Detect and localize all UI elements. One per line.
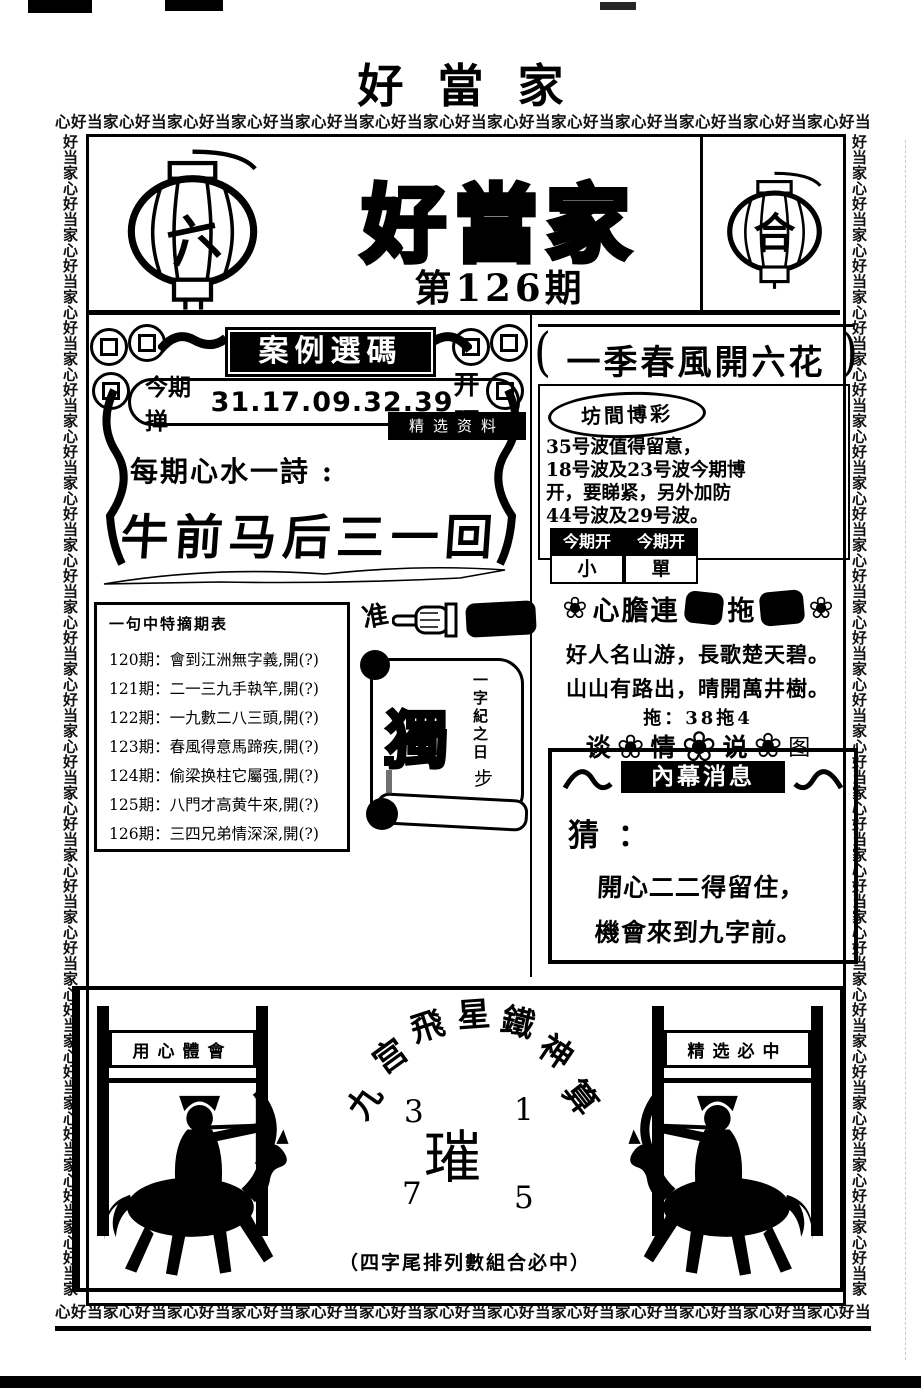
tip-sheet-page: 好當家 心好当家心好当家心好当家心好当家心好当家心好当家心好当家心好当家心好当家… [0, 0, 921, 1388]
bracket-right: ) [841, 322, 858, 383]
smudge-header-text: 拖 [728, 589, 755, 628]
flower-icon: ❀ [562, 591, 587, 626]
right-header-title: 一季春風開六花 [552, 335, 840, 384]
scroll-seal-text [386, 770, 392, 794]
issue-row: 126期：三四兄弟情深深,開(?) [109, 820, 341, 849]
lantern-left: 六 [105, 146, 280, 311]
issues-history-box: 一句中特摘期表 120期：會到江洲無字義,開(?) 121期：二一三九手執竿,開… [94, 602, 350, 852]
right-header-wrap: ( 一季春風開六花 ) [538, 324, 854, 383]
header-cell-divider [700, 137, 703, 310]
grid-number-bottom-left: 7 [402, 1176, 422, 1212]
scroll-seal [384, 756, 394, 766]
unique-pick-scroll: 獨 一字紀之日 步 [358, 648, 530, 836]
open-table-header: 今期开 [550, 528, 624, 556]
issue-row: 121期：二一三九手執竿,開(?) [109, 675, 341, 704]
scroll-curl-top [360, 650, 390, 680]
mounted-archer-left [76, 1072, 311, 1277]
grid-number-bottom-right: 5 [514, 1180, 534, 1216]
scan-smudge [28, 0, 92, 13]
verse-label: 每期心水一詩 : [130, 450, 334, 490]
street-tips-box: 坊間博彩 35号波值得留意， 18号波及23号波今期博 开，要睇紧，另外加防 4… [538, 384, 850, 560]
ribbon-curl-right-icon [793, 760, 845, 794]
flower-icon: ❀ [809, 591, 834, 626]
footer-note: （四字尾排列數組合必中） [320, 1248, 610, 1275]
insider-title: 內幕消息 [621, 761, 785, 793]
open-table-value: 單 [624, 556, 698, 584]
lantern-right: 合 [712, 152, 837, 307]
bottom-scan-bar [0, 1376, 921, 1388]
coin-icon [490, 324, 528, 362]
street-tips-badge: 坊間博彩 [547, 389, 707, 440]
smudged-flower-header: ❀ 心膽連 拖 ❀ [540, 582, 856, 634]
issue-number: 第126期 [320, 258, 680, 312]
insider-line: 開心二二得留住， [596, 865, 856, 910]
grid-number-top-right: 1 [514, 1092, 534, 1128]
issue-row: 122期：一九數二八三頭,開(?) [109, 704, 341, 733]
swoosh-underline [100, 560, 510, 588]
smudged-label [465, 600, 537, 638]
left-gate-plaque: 用心體會 [109, 1030, 256, 1068]
page-title: 好當家 [0, 50, 921, 116]
selected-material-tag: 精选资料 [388, 412, 526, 440]
arc-title-char: 星 [455, 987, 491, 1037]
ribbon-decoration-left [158, 326, 228, 360]
page-title-text: 好當家 [358, 59, 598, 113]
pointing-hand-icon [392, 600, 464, 640]
scroll-big-char: 獨 [386, 690, 448, 780]
border-strip-top: 心好当家心好当家心好当家心好当家心好当家心好当家心好当家心好当家心好当家心好当家… [55, 110, 871, 134]
mounted-archer-right [606, 1072, 841, 1277]
issue-row: 125期：八門才高黄牛來,開(?) [109, 791, 341, 820]
smudge-header-text: 心膽連 [593, 589, 680, 628]
scroll-step-char: 步 [474, 764, 493, 791]
ink-blot [758, 589, 805, 627]
ink-blot [683, 590, 724, 626]
scan-smudge [165, 0, 223, 11]
lantern-right-char: 合 [712, 200, 837, 261]
issue-row: 124期：偷梁换柱它屬强,開(?) [109, 762, 341, 791]
grid-center-char: 璀 [424, 1112, 481, 1194]
scroll-curl-bottom [366, 798, 398, 830]
insider-line: 機會來到九字前。 [594, 910, 854, 955]
tip-line: 18号波及23号波今期博 [546, 459, 746, 482]
open-table: 今期开 今期开 小 單 [550, 528, 698, 584]
scan-smudge [600, 2, 636, 10]
grid-number-top-left: 3 [404, 1094, 424, 1130]
tip-line: 开，要睇紧，另外加防 [546, 482, 746, 505]
insider-info-box: 內幕消息 猜 ： 開心二二得留住， 機會來到九字前。 [548, 748, 858, 964]
bracket-left: ( [534, 322, 551, 383]
poem-line: 山山有路出，晴開萬井樹。 [540, 672, 856, 706]
ribbon-curl-left-icon [561, 760, 613, 794]
issue-row: 123期：春風得意馬蹄疾,開(?) [109, 733, 341, 762]
tip-line: 35号波值得留意， [546, 436, 746, 459]
issues-box-title: 一句中特摘期表 [109, 613, 341, 634]
open-table-header: 今期开 [624, 528, 698, 556]
section-title-case-codes: 案例選碼 [228, 330, 433, 374]
tip-line: 44号波及29号波。 [546, 505, 746, 528]
open-table-value: 小 [550, 556, 624, 584]
coin-icon [90, 328, 128, 366]
scroll-side-text: 一字紀之日 [470, 672, 491, 762]
issue-row: 120期：會到江洲無字義,開(?) [109, 646, 341, 675]
right-gate-plaque: 精选必中 [664, 1030, 811, 1068]
this-issue-label: 今期掸 [145, 368, 211, 436]
column-divider [530, 315, 532, 977]
guess-label: 猜 ： [568, 810, 854, 855]
main-verse: 牛前马后三一回 [98, 498, 523, 568]
scroll-roll-bottom [375, 792, 528, 832]
scan-line [905, 140, 906, 1360]
poem-line: 好人名山游，長歌楚天碧。 [540, 638, 856, 672]
